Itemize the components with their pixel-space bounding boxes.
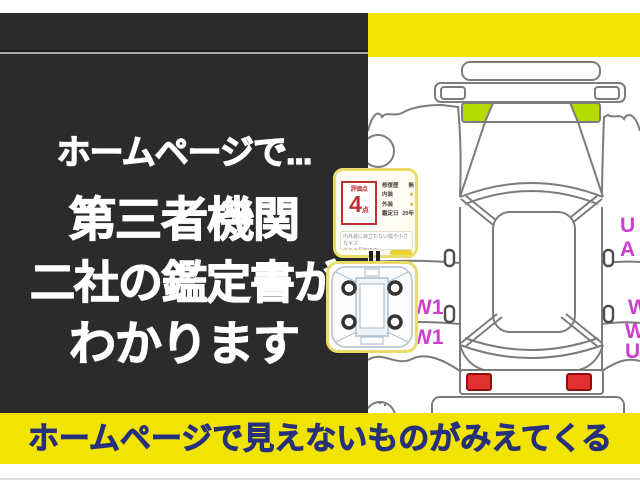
inspection-certificate-card: 評価点 4点 修復歴 無 内装 ★ 外装 ★ 鑑定日 20年 内: [333, 168, 418, 258]
certificate-row: 外装 ★: [382, 201, 414, 210]
headline-line-4: わかります: [0, 305, 368, 374]
bottom-white-strip: [0, 464, 640, 480]
rear-glass-top: [485, 103, 578, 122]
score-unit: 点: [362, 205, 369, 215]
pillar-bottom-right-b: [561, 317, 597, 346]
door-handle-3: [445, 306, 454, 322]
dash-block: [365, 269, 379, 276]
bottom-banner: ホームページで見えないものがみえてくる: [0, 413, 640, 464]
score-box: 評価点 4点: [341, 181, 377, 225]
headline-line-1: ホームページで...: [0, 125, 368, 174]
dot-mark-1: [379, 402, 381, 404]
note-line-1: 内外装に目立たない傷や小さなキズ: [343, 234, 410, 248]
divider-line: [0, 52, 368, 54]
damage-code-right-u: U: [620, 214, 635, 237]
rear-spoiler: [462, 62, 600, 80]
upper-arc-inner: [465, 191, 598, 204]
door-handle-4: [604, 306, 613, 322]
check-point-3: [343, 316, 355, 328]
cabin-inner: [360, 284, 384, 328]
bottom-left-wheel-arc: [368, 402, 395, 413]
goo-logo-mark: [390, 250, 412, 255]
check-point-1: [343, 282, 355, 294]
dot-mark-2: [384, 404, 386, 406]
right-fender-line: [602, 115, 640, 197]
pillar-top-left-a: [461, 199, 497, 228]
row-label: 外装: [382, 201, 393, 210]
lower-arc-outer: [460, 345, 603, 358]
damage-code-right-u2: U: [625, 340, 640, 363]
taillight-right: [567, 374, 591, 390]
left-rocker-wave: [368, 356, 460, 371]
certificate-row: 修復歴 無: [382, 182, 414, 191]
headline-line-3: 二社の鑑定書が: [0, 246, 368, 311]
headline-panel: ホームページで... 第三者機関 二社の鑑定書が わかります: [0, 13, 368, 413]
certificate-row: 鑑定日 20年: [382, 210, 414, 219]
check-point-4: [389, 316, 401, 328]
damage-code-right-w1: W: [628, 296, 640, 319]
certificate-note: 内外装に目立たない傷や小さなキズ られる程度です。: [340, 231, 413, 250]
certificate-rows: 修復歴 無 内装 ★ 外装 ★ 鑑定日 20年: [382, 182, 414, 219]
rear-block: [361, 337, 383, 344]
interior-sketch: [329, 264, 415, 350]
row-label: 鑑定日: [382, 210, 399, 219]
pillar-bottom-left-b: [466, 317, 502, 346]
door-handle-1: [445, 250, 454, 266]
rear-light-right: [595, 87, 619, 99]
row-value: 20年: [402, 210, 414, 219]
row-label: 修復歴: [382, 182, 399, 191]
door-handle-2: [604, 250, 613, 266]
row-label: 内装: [382, 191, 393, 200]
check-point-2: [389, 282, 401, 294]
rear-window-left-edge: [460, 122, 485, 197]
row-value-star: ★: [409, 191, 414, 200]
frame-top-band: [368, 13, 640, 57]
damage-code-right-a: A: [620, 238, 635, 261]
bottom-bumper: [432, 397, 624, 413]
left-wheel-circle: [368, 135, 394, 167]
row-value-star: ★: [409, 201, 414, 210]
row-value: 無: [408, 182, 414, 191]
roof-panel: [493, 212, 575, 332]
used-car-promo-image: ホームページで... 第三者機関 二社の鑑定書が わかります: [0, 0, 640, 480]
score-value: 4: [349, 193, 362, 216]
lower-arc-inner: [465, 338, 598, 350]
taillight-left: [467, 374, 491, 390]
headline-line-2: 第三者機関: [0, 181, 368, 250]
rear-window-right-edge: [578, 122, 603, 197]
banner-text: ホームページで見えないものがみえてくる: [28, 413, 612, 464]
interior-diagram-card: [326, 261, 418, 353]
rear-light-left: [441, 87, 465, 99]
certificate-row: 内装 ★: [382, 191, 414, 200]
